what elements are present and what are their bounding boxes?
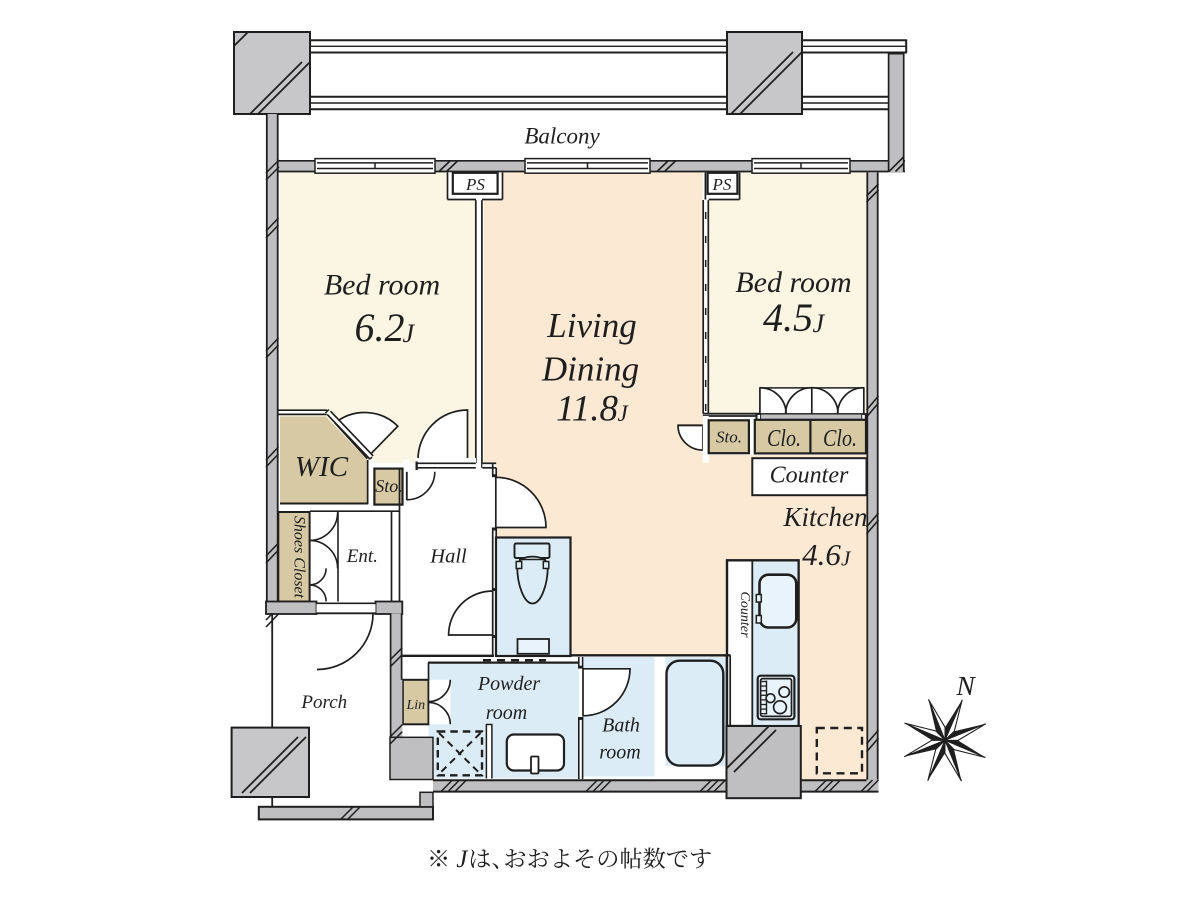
svg-text:Porch: Porch <box>300 692 347 713</box>
svg-text:N: N <box>955 670 976 701</box>
svg-text:Balcony: Balcony <box>524 124 600 149</box>
svg-text:Lin: Lin <box>405 698 425 713</box>
svg-text:Sto.: Sto. <box>716 428 742 447</box>
svg-text:Hall: Hall <box>429 546 467 568</box>
svg-text:PS: PS <box>712 175 732 194</box>
svg-text:Living: Living <box>546 306 636 345</box>
svg-text:room: room <box>486 702 527 724</box>
svg-text:4.5: 4.5 <box>763 295 813 340</box>
svg-text:J: J <box>403 319 416 348</box>
svg-text:PS: PS <box>465 175 485 194</box>
svg-text:Clo.: Clo. <box>767 426 801 452</box>
svg-text:J: J <box>456 846 469 873</box>
svg-text:Counter: Counter <box>737 592 752 638</box>
svg-text:Bed room: Bed room <box>324 268 440 301</box>
svg-text:WIC: WIC <box>295 451 349 483</box>
svg-text:Shoes Closet: Shoes Closet <box>291 516 308 599</box>
svg-text:room: room <box>599 742 640 764</box>
svg-text:Counter: Counter <box>770 463 849 489</box>
svg-text:J: J <box>813 309 826 338</box>
svg-text:Clo.: Clo. <box>823 426 857 452</box>
svg-text:4.6: 4.6 <box>802 537 841 572</box>
svg-text:11.8: 11.8 <box>556 388 619 429</box>
svg-text:Dining: Dining <box>541 349 639 388</box>
svg-text:Bath: Bath <box>602 715 640 737</box>
svg-text:Kitchen: Kitchen <box>783 502 868 532</box>
svg-text:Ent.: Ent. <box>346 546 378 567</box>
svg-text:6.2: 6.2 <box>355 305 405 350</box>
svg-text:Powder: Powder <box>477 673 540 695</box>
svg-text:Sto.: Sto. <box>375 476 403 496</box>
svg-text:J: J <box>618 401 630 426</box>
